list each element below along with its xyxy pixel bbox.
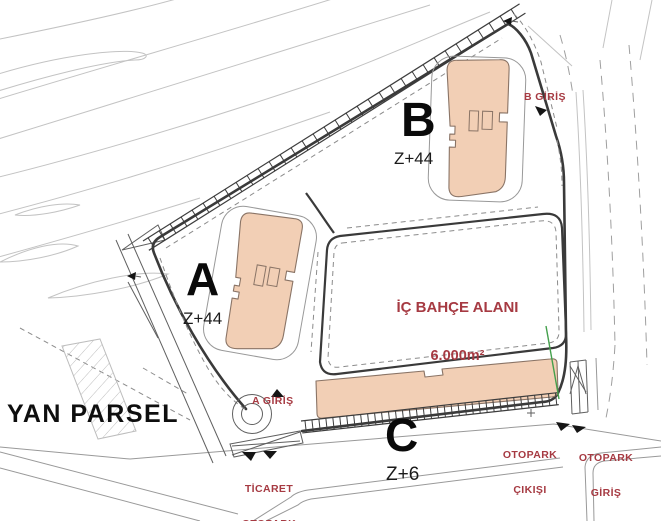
parking-entrance-line1: OTOPARK [573, 453, 639, 465]
plus-mark [527, 409, 535, 417]
building-b-shape [443, 58, 510, 199]
commercial-parking-line1: TİCARET [226, 484, 312, 496]
site-plan: A Z+44 B Z+44 C Z+6 İÇ BAHÇE ALANI 6.000… [0, 0, 661, 521]
commercial-parking-label: TİCARET OTOPARK GİRİŞ-ÇIKIŞI [226, 461, 312, 521]
entrance-b-arrow-icon [535, 106, 547, 116]
commercial-entrance-arrow-icon [242, 452, 256, 461]
commercial-exit-arrow-icon [263, 451, 277, 459]
inner-garden-label: İÇ BAHÇE ALANI 6.000m² [360, 268, 555, 380]
entrance-a-label: A GİRİŞ [252, 396, 294, 408]
inner-garden-area: 6.000m² [360, 348, 555, 364]
inner-garden-title: İÇ BAHÇE ALANI [360, 300, 555, 316]
parking-ramp-structure [570, 358, 598, 414]
parking-exit-line1: OTOPARK [497, 450, 563, 462]
building-c-label: C [385, 412, 418, 458]
building-b-label: B [401, 98, 436, 144]
parking-entrance-label: OTOPARK GİRİŞ [573, 430, 639, 511]
east-street-lanes [560, 35, 647, 418]
building-a-shape [219, 209, 304, 356]
parking-exit-label: OTOPARK ÇIKIŞI [497, 427, 563, 508]
building-a-label: A [186, 256, 219, 302]
building-c-floors: Z+6 [386, 466, 419, 484]
parking-entrance-line2: GİRİŞ [573, 488, 639, 500]
building-a-floors: Z+44 [183, 310, 222, 328]
west-road-arrow-icon [127, 272, 136, 280]
entrance-b-label: B GİRİŞ [524, 92, 566, 104]
building-b-floors: Z+44 [394, 150, 433, 168]
adjacent-parcel-label: YAN PARSEL [7, 400, 179, 429]
parking-exit-line2: ÇIKIŞI [497, 485, 563, 497]
